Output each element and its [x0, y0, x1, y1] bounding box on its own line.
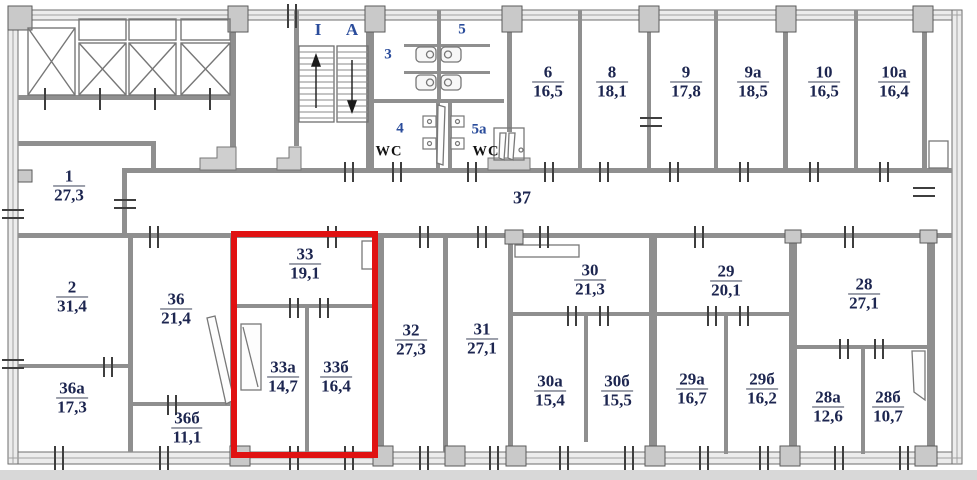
room-label-30: 3021,3	[574, 261, 606, 298]
room-label-28a: 28a12,6	[812, 388, 844, 425]
room-label-36a: 36a17,3	[56, 379, 88, 416]
room-area: 31,4	[56, 297, 88, 316]
room-number: 36a	[56, 379, 88, 397]
bottom-shadow-strip	[0, 470, 977, 480]
room-label-6: 616,5	[532, 63, 564, 100]
room-number: 29a	[676, 370, 708, 388]
room-label-5a: 5a	[472, 122, 487, 139]
room-label-5: 5	[458, 22, 466, 39]
room-number: 10a	[878, 63, 910, 81]
room-area: 16,5	[808, 82, 840, 101]
room-area: 15,4	[534, 391, 566, 410]
room-number: 30a	[534, 372, 566, 390]
room-area: 10,7	[872, 407, 904, 426]
room-number: 28	[853, 275, 876, 293]
room-area: 16,2	[746, 389, 778, 408]
room-area: 27,1	[466, 339, 498, 358]
wc-label-right: WC	[473, 144, 500, 161]
room-label-10a: 10a16,4	[878, 63, 910, 100]
wc-label-left: WC	[376, 144, 403, 161]
room-area: 16,7	[676, 389, 708, 408]
room-label-3: 3	[384, 47, 392, 64]
room-label-10: 1016,5	[808, 63, 840, 100]
room-area: 18,1	[596, 82, 628, 101]
room-number: 6	[541, 63, 556, 81]
room-label-28b: 28б10,7	[872, 388, 904, 425]
room-label-29a: 29a16,7	[676, 370, 708, 407]
room-area: 27,3	[53, 186, 85, 205]
room-area: 17,8	[670, 82, 702, 101]
room-number: 1	[62, 167, 77, 185]
room-number: 9a	[742, 63, 765, 81]
room-label-4: 4	[396, 121, 404, 138]
room-number: 30	[579, 261, 602, 279]
room-number: 32	[400, 321, 423, 339]
floor-plan: 127,3 231,4 3621,4 36a17,3 36б11,1 3319,…	[0, 0, 977, 480]
room-label-30b: 30б15,5	[601, 372, 633, 409]
room-label-2: 231,4	[56, 278, 88, 315]
room-number: 36	[165, 290, 188, 308]
room-area: 27,1	[848, 294, 880, 313]
room-number: 31	[471, 320, 494, 338]
room-label-8: 818,1	[596, 63, 628, 100]
room-area: 21,4	[160, 309, 192, 328]
room-label-36b: 36б11,1	[171, 409, 203, 446]
corridor-label: 37	[513, 188, 531, 209]
room-number: 29б	[746, 370, 778, 388]
room-number: 30б	[601, 372, 633, 390]
room-number: 9	[679, 63, 694, 81]
room-label-1: 127,3	[53, 167, 85, 204]
room-label-28: 2827,1	[848, 275, 880, 312]
room-number: 8	[605, 63, 620, 81]
room-label-9a: 9a18,5	[737, 63, 769, 100]
room-number: 36б	[171, 409, 203, 427]
room-label-32: 3227,3	[395, 321, 427, 358]
room-label-29: 2920,1	[710, 262, 742, 299]
room-area: 18,5	[737, 82, 769, 101]
room-area: 11,1	[172, 428, 203, 447]
room-number: 28a	[812, 388, 844, 406]
room-area: 12,6	[812, 407, 844, 426]
stair-flight-label-right: A	[346, 20, 358, 40]
room-label-36: 3621,4	[160, 290, 192, 327]
room-area: 27,3	[395, 340, 427, 359]
room-label-31: 3127,1	[466, 320, 498, 357]
room-number: 2	[65, 278, 80, 296]
room-area: 21,3	[574, 280, 606, 299]
room-label-29b: 29б16,2	[746, 370, 778, 407]
stair-flight-label-left: I	[315, 20, 322, 40]
room-label-30a: 30a15,4	[534, 372, 566, 409]
room-area: 17,3	[56, 398, 88, 417]
room-number: 29	[715, 262, 738, 280]
room-number: 10	[813, 63, 836, 81]
room-number: 28б	[872, 388, 904, 406]
room-label-9: 917,8	[670, 63, 702, 100]
highlight-box	[231, 231, 378, 458]
room-area: 16,5	[532, 82, 564, 101]
room-area: 16,4	[878, 82, 910, 101]
room-area: 15,5	[601, 391, 633, 410]
room-area: 20,1	[710, 281, 742, 300]
